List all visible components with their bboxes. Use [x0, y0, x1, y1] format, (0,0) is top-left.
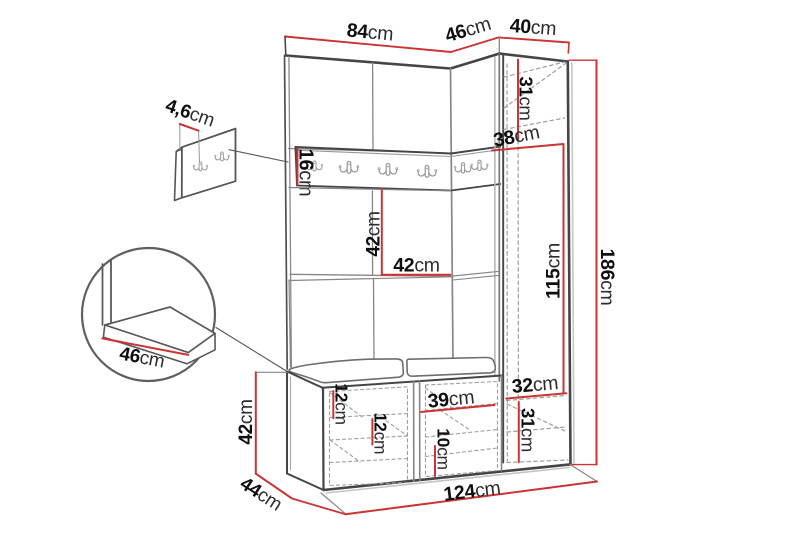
svg-text:84cm: 84cm: [346, 19, 394, 45]
svg-text:10cm: 10cm: [434, 428, 454, 470]
svg-text:12cm: 12cm: [371, 413, 391, 455]
svg-text:39cm: 39cm: [427, 386, 475, 412]
svg-text:31cm: 31cm: [516, 76, 537, 120]
svg-text:40cm: 40cm: [509, 15, 557, 40]
svg-text:42cm: 42cm: [393, 255, 440, 277]
svg-text:16cm: 16cm: [295, 149, 317, 197]
svg-text:31cm: 31cm: [518, 408, 539, 452]
svg-text:42cm: 42cm: [363, 211, 384, 256]
svg-text:186cm: 186cm: [596, 248, 618, 305]
svg-text:12cm: 12cm: [332, 383, 352, 425]
svg-text:32cm: 32cm: [511, 372, 559, 398]
svg-text:115cm: 115cm: [543, 243, 565, 299]
svg-text:42cm: 42cm: [236, 399, 257, 444]
